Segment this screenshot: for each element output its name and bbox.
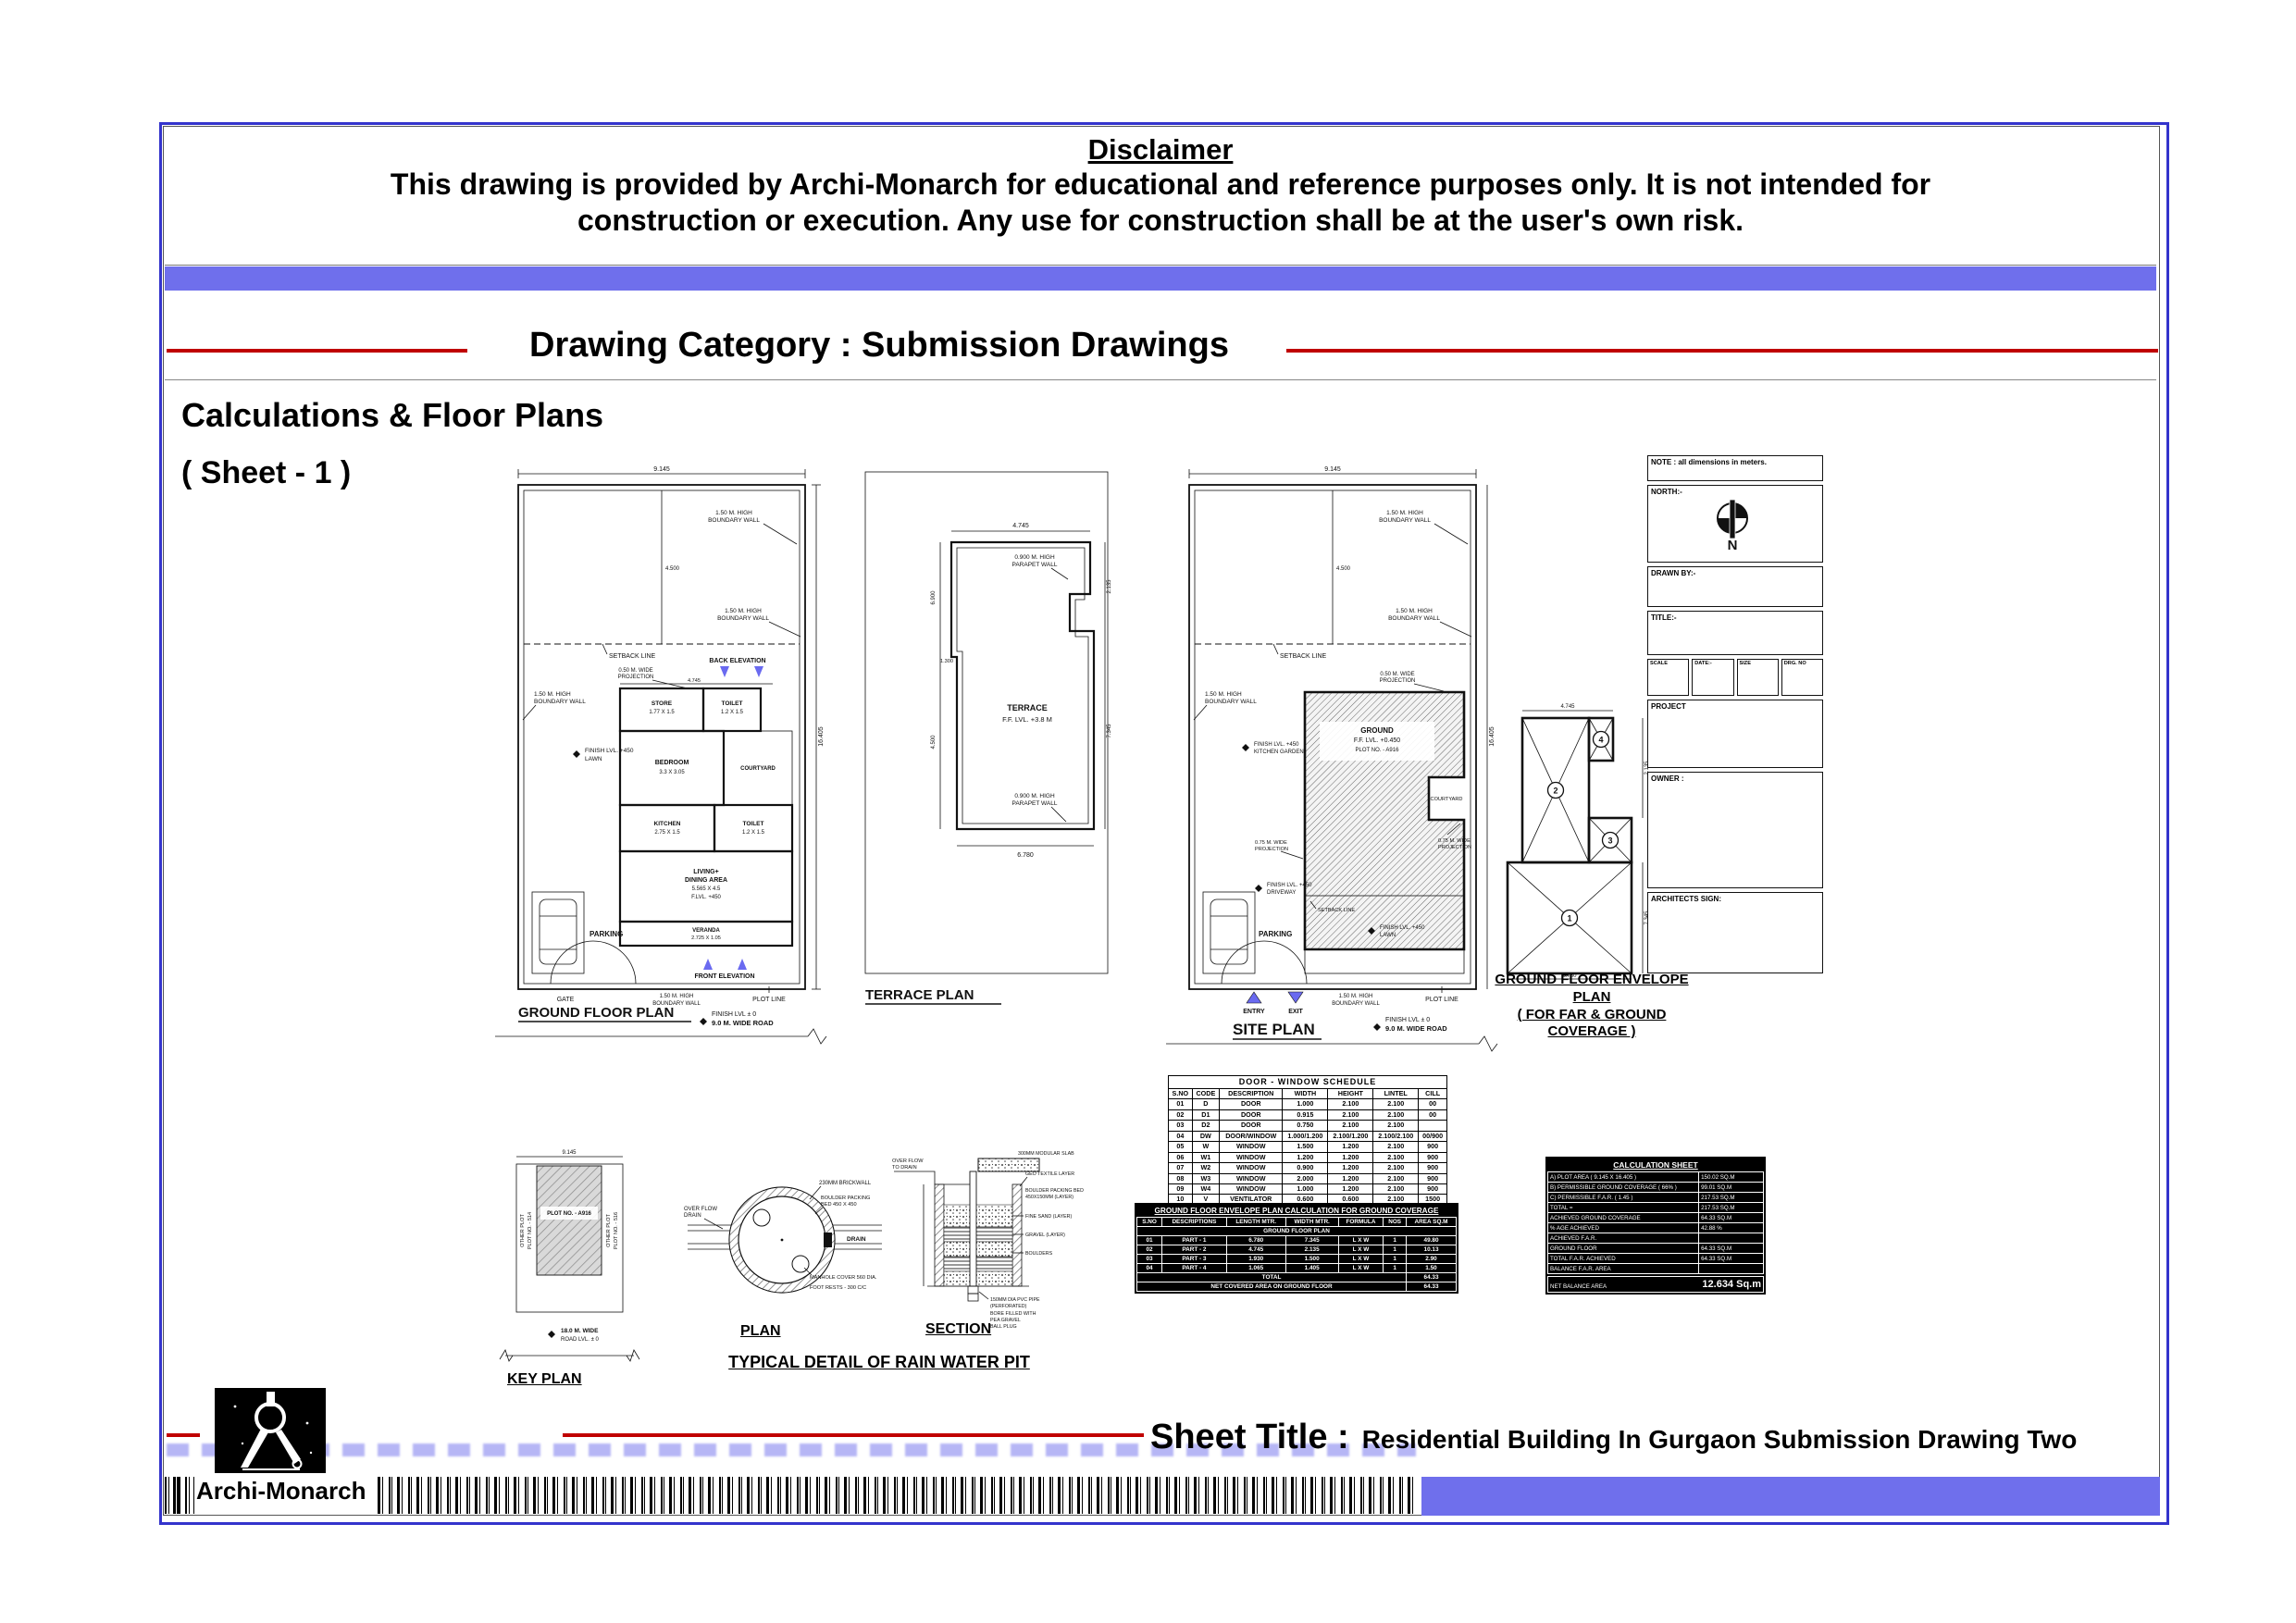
lawn-label: FINISH LVL. +450 — [1380, 925, 1425, 931]
parking-label: PARKING — [590, 930, 623, 938]
category-rule-left — [167, 349, 467, 353]
svg-text:5.565 X 4.5: 5.565 X 4.5 — [692, 886, 721, 892]
svg-text:VERANDA: VERANDA — [692, 928, 720, 934]
category-heading: Drawing Category : Submission Drawings — [481, 326, 1277, 365]
title-block: NOTE : all dimensions in meters. NORTH:-… — [1647, 455, 1823, 977]
elevation-marker-icon — [703, 959, 713, 970]
table-cell: 07 — [1169, 1163, 1193, 1173]
svg-text:0.50 M. WIDE: 0.50 M. WIDE — [1380, 672, 1414, 677]
coverage-group-row: GROUND FLOOR PLAN — [1137, 1227, 1457, 1236]
svg-text:(PERFORATED): (PERFORATED) — [990, 1304, 1027, 1309]
table-cell: W2 — [1192, 1163, 1219, 1173]
table-cell: L X W — [1338, 1255, 1384, 1264]
table-row: 09W4WINDOW1.0001.2002.100900 — [1169, 1183, 1447, 1194]
table-cell: 04 — [1137, 1264, 1162, 1273]
table-row: 07W2WINDOW0.9001.2002.100900 — [1169, 1163, 1447, 1173]
svg-text:PROJECTION: PROJECTION — [1438, 845, 1471, 850]
sheet-title-label: Sheet Title : — [1150, 1418, 1349, 1456]
svg-text:BORE FILLED WITH: BORE FILLED WITH — [990, 1311, 1036, 1317]
rain-pit-plan-drawing: OVER FLOW DRAIN 230MM BRICKWALL BOULDER … — [680, 1158, 888, 1325]
svg-text:PROJECTION: PROJECTION — [1380, 678, 1416, 684]
svg-text:PLOT NO. - 516: PLOT NO. - 516 — [614, 1212, 619, 1249]
table-cell: 1.000 — [1283, 1099, 1328, 1109]
svg-text:F.F. LVL. +0.450: F.F. LVL. +0.450 — [1354, 737, 1400, 744]
driveway-label: FINISH LVL. +450 — [1267, 883, 1312, 888]
table-cell: 1 — [1384, 1255, 1407, 1264]
brand-logo — [215, 1388, 326, 1473]
table-row: BALANCE F.A.R. AREA — [1548, 1264, 1764, 1274]
svg-text:9.0 M. WIDE ROAD: 9.0 M. WIDE ROAD — [1385, 1024, 1447, 1033]
svg-text:PLOT NO. - 514: PLOT NO. - 514 — [527, 1212, 533, 1249]
key-plan-drawing: 9.145 PLOT NO. - A916 OTHER PLOT PLOT NO… — [498, 1147, 641, 1365]
svg-text:1.50 M. HIGH: 1.50 M. HIGH — [1339, 994, 1373, 999]
table-cell: 42.88 % — [1699, 1223, 1764, 1233]
svg-text:F.F. LVL. +3.8 M: F.F. LVL. +3.8 M — [1002, 715, 1052, 724]
table-row: 08W3WINDOW2.0001.2002.100900 — [1169, 1173, 1447, 1183]
table-cell: % AGE ACHIEVED — [1548, 1223, 1699, 1233]
table-cell: 06 — [1169, 1152, 1193, 1162]
svg-text:KITCHEN GARDEN: KITCHEN GARDEN — [1254, 750, 1304, 755]
svg-text:DRIVEWAY: DRIVEWAY — [1267, 890, 1296, 896]
region-number: 3 — [1607, 836, 1612, 846]
table-cell: 2.100 — [1373, 1109, 1419, 1120]
envelope-plan-title: GROUND FLOOR ENVELOPE PLAN ( FOR FAR & G… — [1476, 972, 1707, 1041]
table-row: 03D2DOOR0.7502.1002.100 — [1169, 1121, 1447, 1131]
section-separator — [165, 379, 2156, 380]
table-cell: 64.33 SQ.M — [1699, 1213, 1764, 1223]
parking-label: PARKING — [1259, 930, 1292, 938]
svg-text:BOUNDARY WALL: BOUNDARY WALL — [534, 699, 586, 705]
table-cell: 217.53 SQ.M — [1699, 1193, 1764, 1203]
dim: 4.500 — [931, 735, 937, 750]
title-block-drawn-by: DRAWN BY:- — [1647, 566, 1823, 607]
table-cell: 0.900 — [1283, 1163, 1328, 1173]
svg-text:BOUNDARY WALL: BOUNDARY WALL — [708, 517, 760, 524]
table-cell: 1.930 — [1226, 1255, 1285, 1264]
table-cell: 99.01 SQ.M — [1699, 1183, 1764, 1193]
svg-text:PLOT NO. - A916: PLOT NO. - A916 — [1356, 748, 1400, 753]
table-cell: 2.100 — [1373, 1183, 1419, 1194]
table-row: ACHIEVED F.A.R. — [1548, 1233, 1764, 1244]
svg-text:1.77 X 1.5: 1.77 X 1.5 — [649, 710, 675, 715]
title-block-title: TITLE:- — [1647, 611, 1823, 655]
table-cell — [1699, 1233, 1764, 1244]
pit-section-title: SECTION — [925, 1321, 991, 1338]
table-cell: 1.000/1.200 — [1283, 1131, 1328, 1141]
table-cell: ACHIEVED F.A.R. — [1548, 1233, 1699, 1244]
table-cell: 4.745 — [1226, 1245, 1285, 1255]
parapet-label: 0.900 M. HIGH — [1014, 793, 1055, 799]
table-cell: 2.100 — [1373, 1163, 1419, 1173]
table-cell: DOOR — [1220, 1109, 1283, 1120]
svg-text:BALL PLUG: BALL PLUG — [990, 1324, 1017, 1330]
ground-label: GROUND — [1360, 726, 1394, 735]
key-plot — [537, 1166, 602, 1275]
site-plan-drawing: 9.145 16.405 SETBACK LINE 4.500 1.50 M. … — [1166, 459, 1499, 1056]
disclaimer-box: Disclaimer This drawing is provided by A… — [165, 128, 2156, 266]
svg-text:1.50 M. HIGH: 1.50 M. HIGH — [1386, 510, 1423, 516]
table-cell: 1.200 — [1283, 1152, 1328, 1162]
key-road-label: 18.0 M. WIDE — [561, 1328, 599, 1334]
table-cell: D2 — [1192, 1121, 1219, 1131]
svg-text:OTHER PLOT: OTHER PLOT — [520, 1214, 526, 1247]
disclaimer-line-2: construction or execution. Any use for c… — [165, 203, 2156, 239]
table-cell: 900 — [1419, 1142, 1447, 1152]
table-cell: L X W — [1338, 1236, 1384, 1245]
door-window-schedule: DOOR - WINDOW SCHEDULE S.NO CODE DESCRIP… — [1168, 1075, 1447, 1206]
table-cell: 1.200 — [1328, 1142, 1373, 1152]
svg-text:0.75 M. WIDE: 0.75 M. WIDE — [1255, 840, 1287, 846]
table-row: 04DWDOOR/WINDOW1.000/1.2002.100/1.2002.1… — [1169, 1131, 1447, 1141]
table-cell: 1.200 — [1328, 1152, 1373, 1162]
title-block-minirow: SCALE DATE:- SIZE DRG. NO — [1647, 659, 1823, 696]
table-cell: 2.100 — [1373, 1121, 1419, 1131]
elevation-marker-icon — [754, 666, 763, 677]
dim: 7.345 — [1107, 724, 1112, 738]
footer-rule-left — [167, 1433, 200, 1437]
boundary-wall-label: 1.50 M. HIGH — [534, 691, 571, 698]
sheet-title-value: Residential Building In Gurgaon Submissi… — [1362, 1425, 2078, 1454]
svg-text:DINING AREA: DINING AREA — [685, 877, 727, 884]
svg-text:1.50 M. HIGH: 1.50 M. HIGH — [660, 994, 694, 999]
plot-line-label: PLOT LINE — [752, 997, 786, 1003]
barcode-main — [378, 1477, 1416, 1514]
table-row: 04PART - 41.0651.405L X W11.50 — [1137, 1264, 1457, 1273]
svg-text:3.3 X 3.05: 3.3 X 3.05 — [659, 770, 685, 775]
table-cell: 0.915 — [1283, 1109, 1328, 1120]
table-cell: 02 — [1169, 1109, 1193, 1120]
table-cell: 900 — [1419, 1163, 1447, 1173]
brickwall-label: 230MM BRICKWALL — [819, 1181, 872, 1186]
table-cell: 1.50 — [1407, 1264, 1457, 1273]
svg-text:BOULDER PACKING BED: BOULDER PACKING BED — [1025, 1188, 1084, 1194]
region-number: 2 — [1553, 787, 1558, 796]
table-cell: PART - 2 — [1162, 1245, 1227, 1255]
sheet-number: ( Sheet - 1 ) — [181, 455, 351, 491]
dim-building-width: 4.745 — [688, 678, 701, 684]
accent-band — [165, 266, 2156, 291]
table-cell: DOOR — [1220, 1099, 1283, 1109]
table-cell: L X W — [1338, 1245, 1384, 1255]
table-cell: 2.100/1.200 — [1328, 1131, 1373, 1141]
size-box: SIZE — [1737, 659, 1779, 696]
title-block-architect: ARCHITECTS SIGN: — [1647, 892, 1823, 973]
table-row: 05WWINDOW1.5001.2002.100900 — [1169, 1142, 1447, 1152]
svg-text:2.725 X 1.05: 2.725 X 1.05 — [691, 935, 721, 941]
balance-area-value: 12.634 Sq.m — [1702, 1279, 1761, 1290]
svg-text:9.0 M. WIDE ROAD: 9.0 M. WIDE ROAD — [712, 1019, 774, 1027]
ground-floor-plan-title: GROUND FLOOR PLAN — [518, 1005, 674, 1021]
table-cell: 1.200 — [1328, 1183, 1373, 1194]
coverage-total-row: TOTAL 64.33 — [1137, 1273, 1457, 1282]
table-cell: 2.100 — [1373, 1173, 1419, 1183]
table-cell: 1 — [1384, 1236, 1407, 1245]
table-cell: WINDOW — [1220, 1163, 1283, 1173]
svg-text:1.2 X 1.5: 1.2 X 1.5 — [721, 710, 744, 715]
table-cell: WINDOW — [1220, 1152, 1283, 1162]
manhole-label: MANHOLE COVER 560 DIA. — [810, 1275, 877, 1281]
svg-text:LAWN: LAWN — [585, 756, 602, 762]
svg-text:BOUNDARY WALL: BOUNDARY WALL — [717, 615, 769, 622]
table-cell: 02 — [1137, 1245, 1162, 1255]
boundary-wall-label: 1.50 M. HIGH — [725, 608, 762, 614]
table-cell: 2.000 — [1283, 1173, 1328, 1183]
dim-setback: 4.500 — [665, 566, 680, 572]
drawing-sheet: { "page": { "disclaimer_title": "Disclai… — [0, 0, 2296, 1623]
table-cell: B) PERMISSIBLE GROUND COVERAGE ( 66% ) — [1548, 1183, 1699, 1193]
footer-rule-mid — [563, 1433, 1144, 1437]
table-cell: 10.13 — [1407, 1245, 1457, 1255]
svg-text:TOILET: TOILET — [743, 821, 764, 827]
region-number: 4 — [1598, 736, 1603, 745]
calculation-sheet: CALCULATION SHEET A) PLOT AREA ( 9.145 X… — [1545, 1157, 1766, 1295]
table-row: 06W1WINDOW1.2001.2002.100900 — [1169, 1152, 1447, 1162]
svg-text:PLOT LINE: PLOT LINE — [1425, 997, 1458, 1003]
category-rule-right — [1286, 349, 2158, 353]
table-cell: 2.100 — [1373, 1142, 1419, 1152]
svg-text:FINE SAND (LAYER): FINE SAND (LAYER) — [1025, 1214, 1072, 1220]
elevation-marker-icon — [720, 666, 729, 677]
table-cell: 1.200 — [1328, 1163, 1373, 1173]
table-cell — [1699, 1264, 1764, 1274]
table-cell: 7.345 — [1285, 1236, 1338, 1245]
svg-text:TOILET: TOILET — [722, 700, 743, 707]
drain-label: DRAIN — [847, 1236, 866, 1243]
table-cell: 1 — [1384, 1264, 1407, 1273]
key-plan-title: KEY PLAN — [507, 1371, 582, 1388]
table-cell: W4 — [1192, 1183, 1219, 1194]
svg-text:2.75 X 1.5: 2.75 X 1.5 — [654, 830, 680, 836]
coverage-header-row: S.NO DESCRIPTIONS LENGTH MTR. WIDTH MTR.… — [1137, 1218, 1457, 1227]
table-row: 03PART - 31.9301.500L X W12.90 — [1137, 1255, 1457, 1264]
table-cell: 2.100 — [1328, 1121, 1373, 1131]
table-row: 01PART - 16.7807.345L X W149.80 — [1137, 1236, 1457, 1245]
parapet-label: 0.900 M. HIGH — [1014, 554, 1055, 561]
svg-text:PARAPET WALL: PARAPET WALL — [1011, 562, 1057, 568]
dim: 6.780 — [1017, 852, 1034, 859]
table-cell: 2.100 — [1373, 1099, 1419, 1109]
terrace-label: TERRACE — [1007, 703, 1048, 712]
table-cell: 64.33 SQ.M — [1699, 1254, 1764, 1264]
table-cell: DOOR/WINDOW — [1220, 1131, 1283, 1141]
exit-arrow-icon — [1288, 992, 1303, 1003]
table-cell: DOOR — [1220, 1121, 1283, 1131]
table-cell: 05 — [1169, 1142, 1193, 1152]
table-cell: TOTAL F.A.R. ACHIEVED — [1548, 1254, 1699, 1264]
dim-setback: 4.500 — [1336, 566, 1351, 572]
dim-plot-depth: 16.405 — [818, 726, 825, 747]
title-block-owner: OWNER : — [1647, 772, 1823, 888]
lawn-level-label: FINISH LVL. +450 — [585, 748, 634, 754]
table-cell: BALANCE F.A.R. AREA — [1548, 1264, 1699, 1274]
dim: 9.145 — [562, 1150, 577, 1156]
schedule-title: DOOR - WINDOW SCHEDULE — [1169, 1076, 1447, 1089]
svg-text:N: N — [1728, 538, 1738, 553]
ground-coverage-table: GROUND FLOOR ENVELOPE PLAN CALCULATION F… — [1135, 1203, 1458, 1294]
svg-text:OVER FLOW: OVER FLOW — [892, 1158, 924, 1164]
svg-text:OTHER PLOT: OTHER PLOT — [606, 1214, 612, 1247]
svg-text:1.2 X 1.5: 1.2 X 1.5 — [742, 830, 765, 836]
table-cell: 00/900 — [1419, 1131, 1447, 1141]
rooms: STORE 1.77 X 1.5 TOILET 1.2 X 1.5 BEDROO… — [620, 688, 792, 946]
table-cell — [1419, 1121, 1447, 1131]
svg-text:BOUNDARY WALL: BOUNDARY WALL — [1332, 1001, 1380, 1007]
table-cell: 2.100/2.100 — [1373, 1131, 1419, 1141]
table-cell: 1.200 — [1328, 1173, 1373, 1183]
site-plan-title: SITE PLAN — [1233, 1021, 1315, 1038]
svg-text:BOULDER PACKING: BOULDER PACKING — [821, 1196, 870, 1201]
table-cell: WINDOW — [1220, 1142, 1283, 1152]
table-cell: 2.100 — [1328, 1099, 1373, 1109]
svg-text:GEO TEXTILE LAYER: GEO TEXTILE LAYER — [1025, 1171, 1074, 1177]
table-cell: 1.405 — [1285, 1264, 1338, 1273]
svg-text:BOUNDARY WALL: BOUNDARY WALL — [1379, 517, 1431, 524]
calculation-sheet-title: CALCULATION SHEET — [1547, 1158, 1764, 1171]
table-cell: 00 — [1419, 1099, 1447, 1109]
table-row: B) PERMISSIBLE GROUND COVERAGE ( 66% )99… — [1548, 1183, 1764, 1193]
north-compass-icon: N — [1648, 498, 1817, 551]
compass-icon — [215, 1388, 326, 1473]
table-cell: D1 — [1192, 1109, 1219, 1120]
entry-arrow-icon — [1247, 992, 1261, 1003]
drg-no-box: DRG. NO — [1781, 659, 1823, 696]
svg-text:PARAPET WALL: PARAPET WALL — [1011, 800, 1057, 807]
svg-text:DRAIN: DRAIN — [684, 1213, 701, 1219]
svg-text:BOULDERS: BOULDERS — [1025, 1251, 1053, 1257]
svg-text:ROAD LVL. ± 0: ROAD LVL. ± 0 — [561, 1337, 600, 1343]
scale-box: SCALE — [1647, 659, 1689, 696]
table-row: 02D1DOOR0.9152.1002.10000 — [1169, 1109, 1447, 1120]
sheet-title-row: Sheet Title :Residential Building In Gur… — [1150, 1418, 2077, 1457]
svg-text:SETBACK LINE: SETBACK LINE — [1318, 908, 1355, 913]
brand-name: Archi-Monarch — [196, 1477, 366, 1505]
projection-label: 0.50 M. WIDE — [618, 668, 652, 674]
table-cell: 03 — [1169, 1121, 1193, 1131]
courtyard-label: COURTYARD — [1431, 797, 1463, 802]
table-cell: WINDOW — [1220, 1183, 1283, 1194]
table-cell: 150.02 SQ.M — [1699, 1172, 1764, 1183]
kitchen-garden-label: FINISH LVL. +450 — [1254, 742, 1299, 748]
svg-text:FINISH LVL ± 0: FINISH LVL ± 0 — [1385, 1017, 1430, 1023]
table-row: A) PLOT AREA ( 9.145 X 16.405 )150.02 SQ… — [1548, 1172, 1764, 1183]
footer-accent-bar — [1421, 1477, 2160, 1516]
table-cell: W3 — [1192, 1173, 1219, 1183]
table-row: GROUND FLOOR64.33 SQ.M — [1548, 1244, 1764, 1254]
table-cell: 217.53 SQ.M — [1699, 1203, 1764, 1213]
title-block-note: NOTE : all dimensions in meters. — [1647, 455, 1823, 481]
date-box: DATE:- — [1692, 659, 1733, 696]
table-cell: 03 — [1137, 1255, 1162, 1264]
table-cell: WINDOW — [1220, 1173, 1283, 1183]
table-row: 02PART - 24.7452.135L X W110.13 — [1137, 1245, 1457, 1255]
svg-text:300MM MODULAR SLAB: 300MM MODULAR SLAB — [1018, 1151, 1074, 1157]
svg-text:BED 450 X 450: BED 450 X 450 — [821, 1202, 857, 1208]
svg-text:BOUNDARY WALL: BOUNDARY WALL — [1205, 699, 1257, 705]
table-row: 01DDOOR1.0002.1002.10000 — [1169, 1099, 1447, 1109]
table-row: TOTAL =217.53 SQ.M — [1548, 1203, 1764, 1213]
table-cell: 1.065 — [1226, 1264, 1285, 1273]
road-level-label: FINISH LVL ± 0 — [712, 1011, 756, 1018]
terrace-plan-drawing: 4.745 6.780 6.900 4.500 2.135 7.345 1.30… — [851, 459, 1124, 1033]
entry-label: ENTRY — [1243, 1009, 1265, 1015]
svg-text:0.75 M. WIDE: 0.75 M. WIDE — [1438, 838, 1471, 844]
table-cell: DW — [1192, 1131, 1219, 1141]
schedule-header-row: S.NO CODE DESCRIPTION WIDTH HEIGHT LINTE… — [1169, 1089, 1447, 1099]
calculation-final-row: NET BALANCE AREA 12.634 Sq.m — [1547, 1276, 1764, 1293]
table-cell: 00 — [1419, 1109, 1447, 1120]
key-plot-label: PLOT NO. - A916 — [547, 1211, 591, 1217]
terrace-plan-title: TERRACE PLAN — [865, 987, 974, 1003]
table-cell: 1.500 — [1285, 1255, 1338, 1264]
svg-text:1.50 M. HIGH: 1.50 M. HIGH — [1396, 608, 1433, 614]
svg-text:1.50 M. HIGH: 1.50 M. HIGH — [1205, 691, 1242, 698]
front-elevation-label: FRONT ELEVATION — [694, 973, 754, 980]
table-cell: W1 — [1192, 1152, 1219, 1162]
table-cell: 900 — [1419, 1183, 1447, 1194]
table-row: C) PERMISSIBLE F.A.R. ( 1.45 )217.53 SQ.… — [1548, 1193, 1764, 1203]
ground-floor-plan-drawing: 9.145 16.405 SETBACK LINE 4.500 1.50 M. … — [495, 459, 828, 1056]
table-cell: 49.80 — [1407, 1236, 1457, 1245]
table-cell: 01 — [1169, 1099, 1193, 1109]
table-cell: 04 — [1169, 1131, 1193, 1141]
table-cell: 2.100 — [1328, 1109, 1373, 1120]
table-cell: GROUND FLOOR — [1548, 1244, 1699, 1254]
table-cell: 6.780 — [1226, 1236, 1285, 1245]
table-cell: 64.33 SQ.M — [1699, 1244, 1764, 1254]
table-cell: 1.000 — [1283, 1183, 1328, 1194]
svg-text:LIVING+: LIVING+ — [693, 869, 718, 875]
table-row: ACHIEVED GROUND COVERAGE64.33 SQ.M — [1548, 1213, 1764, 1223]
rain-pit-section-drawing: OVER FLOW TO DRAIN 300MM MODULAR SLAB GE… — [890, 1131, 1075, 1330]
svg-text:450X150MM (LAYER): 450X150MM (LAYER) — [1025, 1195, 1074, 1200]
setback-label: SETBACK LINE — [609, 653, 656, 660]
table-cell: 900 — [1419, 1173, 1447, 1183]
svg-text:PROJECTION: PROJECTION — [618, 675, 654, 680]
section-title: Calculations & Floor Plans — [181, 396, 603, 435]
table-cell: 1 — [1384, 1245, 1407, 1255]
gate-label: GATE — [557, 997, 575, 1003]
setback-label: SETBACK LINE — [1280, 653, 1327, 660]
rain-pit-main-title: TYPICAL DETAIL OF RAIN WATER PIT — [680, 1353, 1078, 1372]
table-row: TOTAL F.A.R. ACHIEVED64.33 SQ.M — [1548, 1254, 1764, 1264]
table-cell: ACHIEVED GROUND COVERAGE — [1548, 1213, 1699, 1223]
dim: 4.745 — [1012, 523, 1029, 529]
coverage-net-row: NET COVERED AREA ON GROUND FLOOR 64.33 — [1137, 1282, 1457, 1292]
svg-text:LAWN: LAWN — [1380, 933, 1396, 938]
table-cell: TOTAL = — [1548, 1203, 1699, 1213]
back-elevation-label: BACK ELEVATION — [709, 658, 765, 664]
svg-text:COURTYARD: COURTYARD — [740, 766, 776, 772]
dim-plot-width: 9.145 — [1324, 466, 1341, 473]
svg-text:GRAVEL (LAYER): GRAVEL (LAYER) — [1025, 1233, 1065, 1238]
svg-text:BEDROOM: BEDROOM — [655, 760, 689, 766]
disclaimer-line-1: This drawing is provided by Archi-Monarc… — [165, 167, 2156, 203]
svg-text:PROJECTION: PROJECTION — [1255, 847, 1288, 852]
footrest-label: FOOT RESTS - 300 C/C — [810, 1285, 866, 1291]
table-cell: W — [1192, 1142, 1219, 1152]
table-cell: PART - 4 — [1162, 1264, 1227, 1273]
svg-text:STORE: STORE — [652, 700, 673, 707]
table-cell: 08 — [1169, 1173, 1193, 1183]
boundary-wall-label: 1.50 M. HIGH — [715, 510, 752, 516]
title-block-project: PROJECT — [1647, 700, 1823, 768]
table-cell: 0.750 — [1283, 1121, 1328, 1131]
table-cell: 09 — [1169, 1183, 1193, 1194]
dim: 4.745 — [1560, 704, 1575, 710]
pit-plan-title: PLAN — [740, 1323, 781, 1340]
dim: 6.900 — [931, 590, 937, 605]
exit-label: EXIT — [1288, 1009, 1303, 1015]
